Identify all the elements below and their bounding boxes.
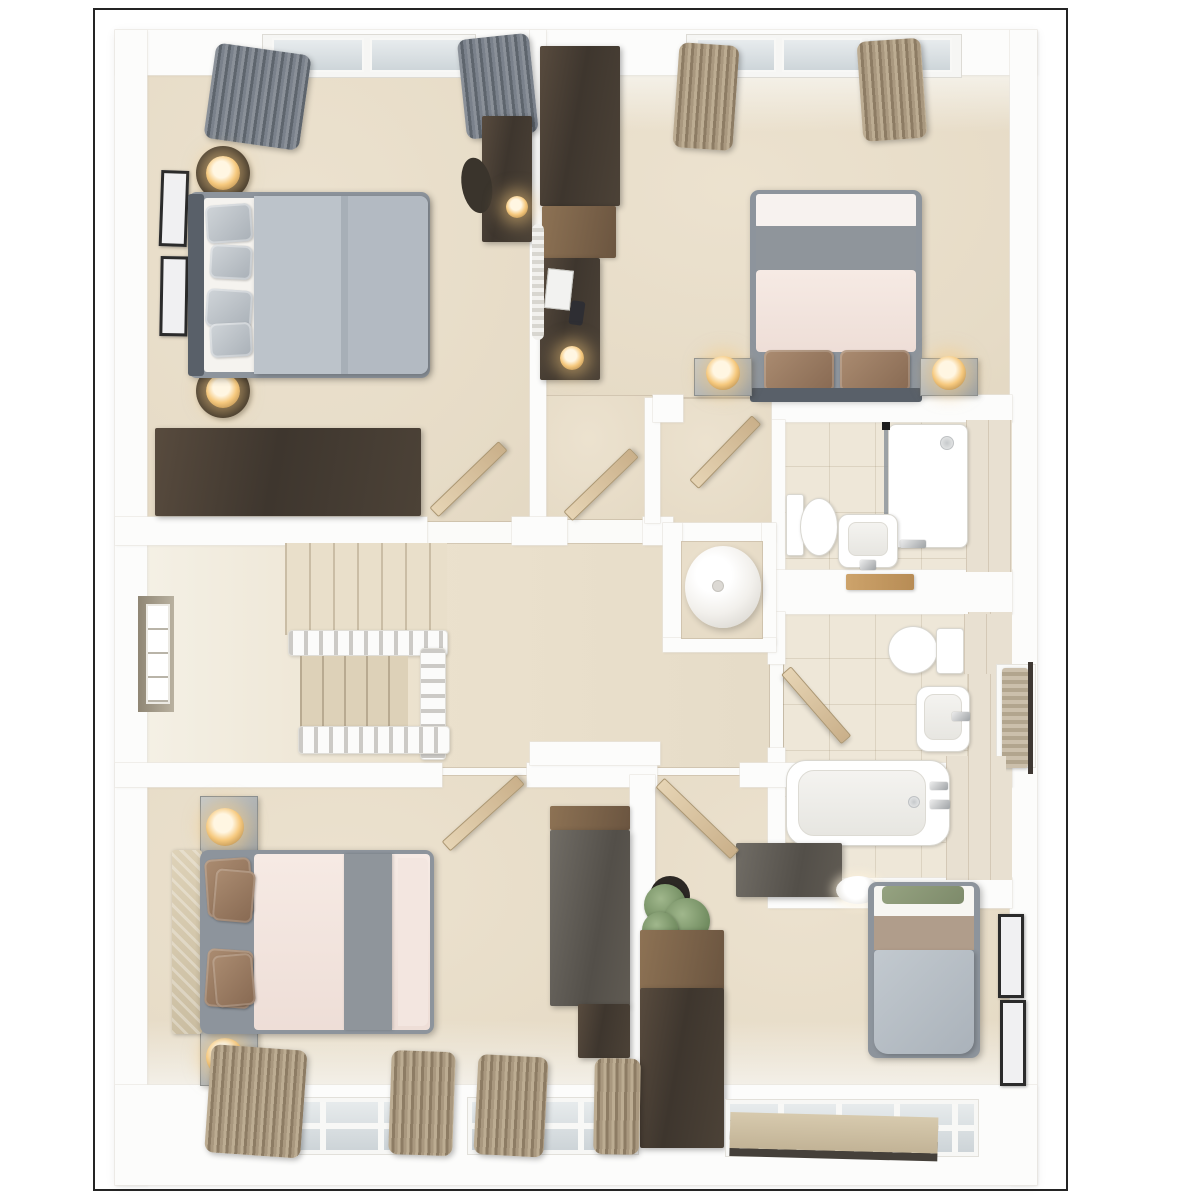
page xyxy=(0,0,1200,1201)
image-border-frame xyxy=(93,8,1068,1191)
floor-plan xyxy=(0,0,1200,1201)
